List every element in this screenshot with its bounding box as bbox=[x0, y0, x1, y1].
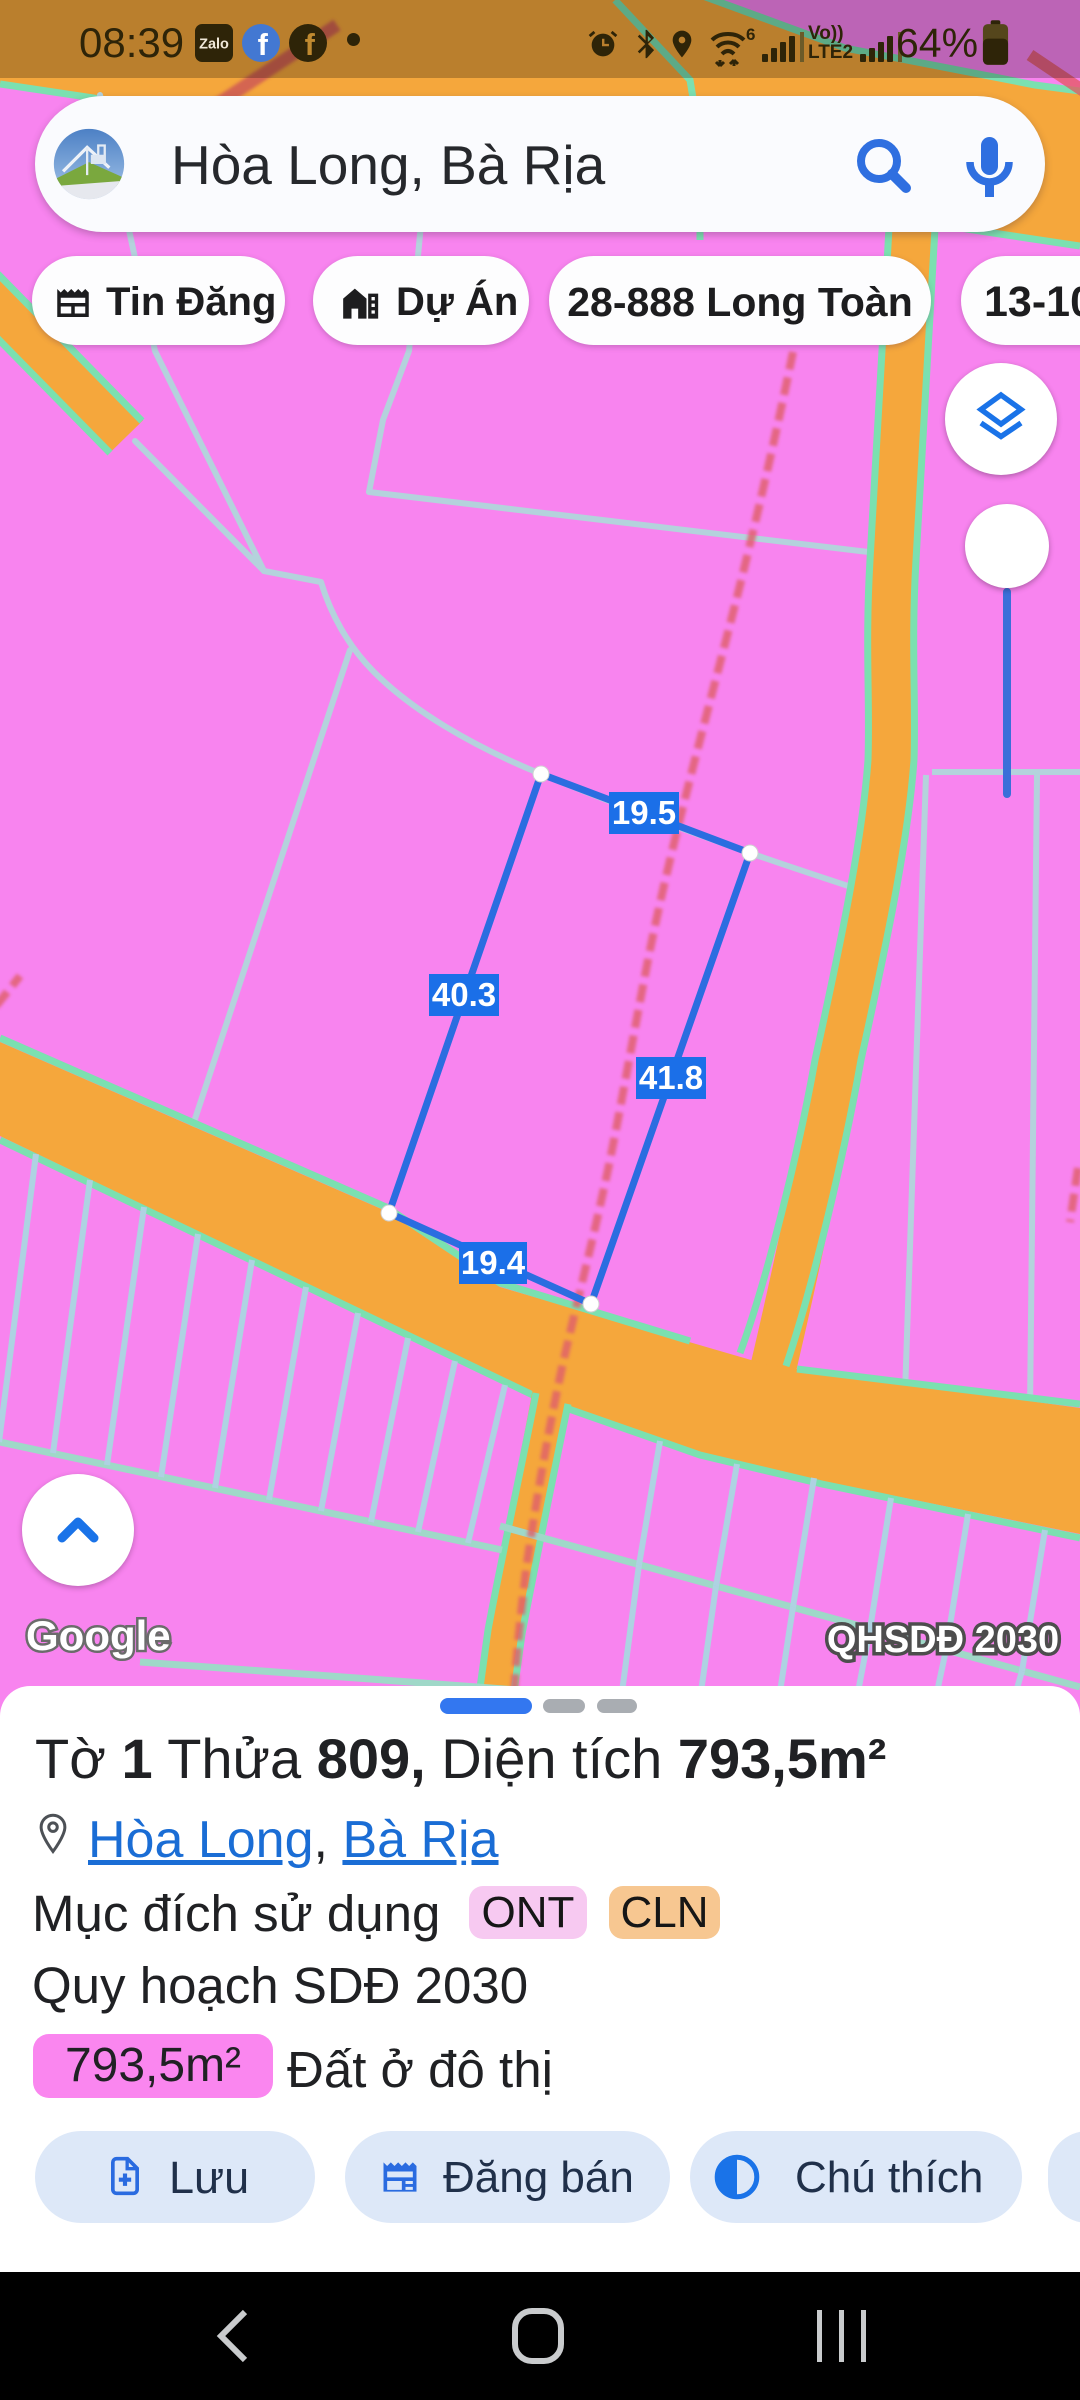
svg-text:19.5: 19.5 bbox=[612, 794, 676, 831]
svg-text:Google: Google bbox=[26, 1612, 171, 1659]
svg-text:6: 6 bbox=[746, 25, 755, 44]
svg-text:19.4: 19.4 bbox=[461, 1244, 526, 1281]
svg-text:Zalo: Zalo bbox=[199, 36, 229, 52]
svg-text:f: f bbox=[305, 27, 316, 62]
svg-text:41.8: 41.8 bbox=[639, 1059, 703, 1096]
svg-text:40.3: 40.3 bbox=[432, 976, 496, 1013]
svg-text:QHSDĐ 2030: QHSDĐ 2030 bbox=[827, 1619, 1059, 1661]
svg-text:f: f bbox=[258, 27, 269, 62]
